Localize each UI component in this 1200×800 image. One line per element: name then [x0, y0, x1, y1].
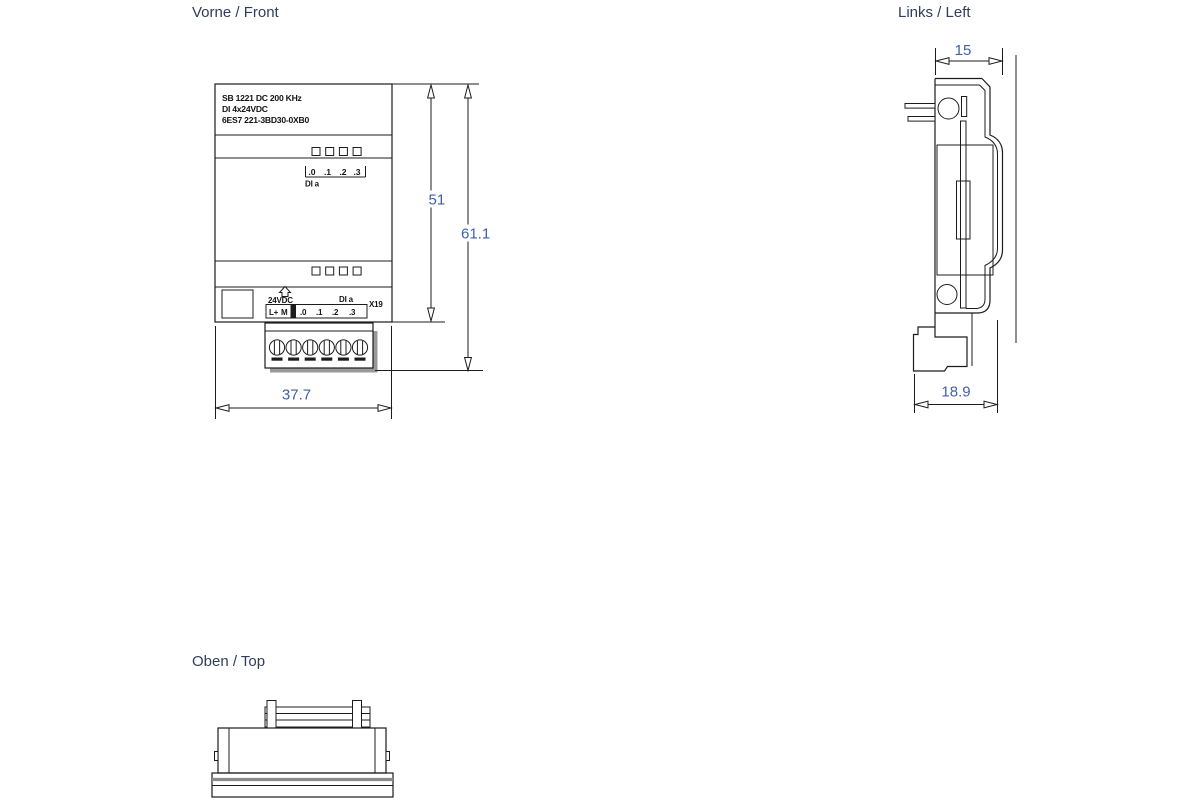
terminal-screw — [352, 340, 367, 361]
supply-arrow-icon — [280, 287, 291, 297]
arrowhead-left — [216, 405, 229, 412]
nameplate-line-1: SB 1221 DC 200 KHz — [222, 93, 302, 103]
arrowhead-right — [989, 58, 1002, 65]
left-view: Links / Left 15 18.9 — [898, 4, 1016, 413]
top-view-title: Oben / Top — [192, 653, 265, 670]
terminal-screw — [319, 340, 334, 361]
connector-pin — [908, 117, 935, 122]
nameplate-line-2: DI 4x24VDC — [222, 104, 268, 114]
terminal-block-shadow — [270, 368, 378, 373]
arrowhead-down — [428, 308, 435, 321]
terminal-label: .0 — [300, 308, 307, 317]
front-view-title: Vorne / Front — [192, 4, 280, 21]
terminal-screw — [286, 340, 301, 361]
terminal-row-divider — [291, 305, 297, 319]
led-indicator — [353, 267, 361, 275]
front-view: Vorne / Front SB 1221 DC 200 KHz DI 4x24… — [192, 4, 495, 419]
rail-post — [353, 701, 362, 729]
led-indicator — [339, 267, 347, 275]
top-view: Oben / Top — [192, 653, 393, 797]
dimensional-drawing: Vorne / Front SB 1221 DC 200 KHz DI 4x24… — [0, 0, 1200, 800]
terminal-di-label: DI a — [339, 295, 354, 304]
terminal-label: .1 — [316, 308, 323, 317]
di-group-label: DI a — [305, 180, 320, 189]
mounting-pad — [222, 290, 253, 318]
terminal-screw — [269, 340, 284, 361]
terminal-label: .2 — [332, 308, 339, 317]
latch-circle-bottom — [937, 285, 957, 305]
supply-label: 24VDC — [268, 296, 293, 305]
side-nub — [215, 752, 219, 761]
latch-circle-top — [938, 98, 959, 119]
latch-slot — [962, 97, 967, 117]
terminal-screw — [303, 340, 318, 361]
terminal-block-side — [914, 327, 968, 371]
terminal-screws — [269, 340, 367, 361]
arrowhead-up — [465, 85, 472, 98]
led-indicator — [326, 148, 334, 156]
connector-id-label: X19 — [369, 300, 383, 309]
arrowhead-right — [378, 405, 391, 412]
housing-body — [218, 728, 386, 773]
terminal-label: L+ — [269, 308, 279, 317]
arrowhead-down — [465, 358, 472, 371]
nameplate-line-3: 6ES7 221-3BD30-0XB0 — [222, 115, 309, 125]
terminal-label: M — [281, 308, 288, 317]
arrowhead-right — [984, 401, 997, 408]
channel-label: .1 — [324, 167, 331, 177]
dim-body-height: 51 — [429, 192, 446, 209]
terminal-block-shadow — [373, 331, 378, 372]
dim-bottom-depth: 18.9 — [941, 384, 970, 401]
side-nub — [386, 752, 390, 761]
dim-top-depth: 15 — [955, 42, 972, 59]
connector-pin — [905, 104, 935, 109]
arrowhead-up — [428, 85, 435, 98]
channel-label: .0 — [309, 167, 316, 177]
rail-post — [267, 701, 276, 729]
arrowhead-left — [915, 401, 928, 408]
clip-mid-section — [957, 181, 971, 239]
led-indicator — [312, 148, 320, 156]
led-indicator — [339, 148, 347, 156]
terminal-screw — [336, 340, 351, 361]
terminal-label: .3 — [349, 308, 356, 317]
dim-width: 37.7 — [282, 387, 311, 404]
led-indicator — [353, 148, 361, 156]
arrowhead-left — [936, 58, 949, 65]
channel-label: .3 — [354, 167, 361, 177]
channel-label: .2 — [340, 167, 347, 177]
left-view-title: Links / Left — [898, 4, 971, 21]
dim-total-height: 61.1 — [461, 226, 490, 243]
led-indicator — [326, 267, 334, 275]
technical-drawing-page: Vorne / Front SB 1221 DC 200 KHz DI 4x24… — [0, 0, 1200, 800]
led-indicator — [312, 267, 320, 275]
